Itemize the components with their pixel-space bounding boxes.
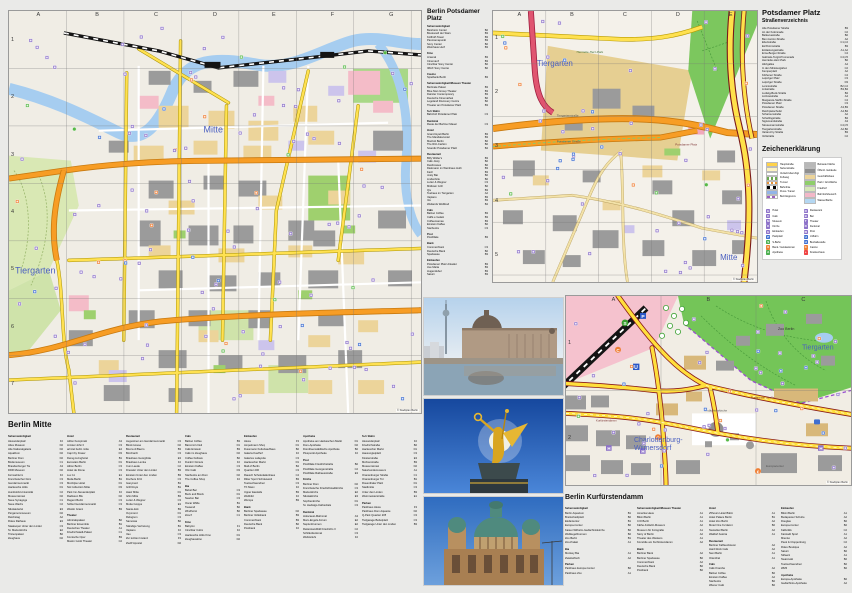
zoo-label: Zoo Berlin <box>778 327 794 331</box>
svg-text:H: H <box>607 446 610 451</box>
index-entry: OttenthalA1 <box>709 557 775 561</box>
legend-icon: ✉ <box>804 230 808 234</box>
district-label: Mitte <box>720 253 738 262</box>
index-entry: WeinmeisterstraßeE1 <box>362 495 417 499</box>
index-entry: Reste der Berliner MauerC3 <box>427 123 488 127</box>
index-entry: Weilands WellfoodB4 <box>427 203 488 207</box>
legend-title: Zeichenerklärung <box>762 146 848 153</box>
street-label-1: Potsdamer Straße <box>557 140 581 144</box>
index-potsdamer-platz: Berlin Potsdamer Platz SehenswürdigkeitB… <box>427 8 488 277</box>
legend-icon: S <box>766 240 770 244</box>
svg-text:H: H <box>819 446 822 451</box>
index-entry: Westin GrandB3 <box>67 508 122 512</box>
district-label: Mitte <box>204 125 223 135</box>
photo-bode-museum <box>423 297 564 396</box>
bridge <box>424 358 563 364</box>
legend-icon: K <box>766 224 770 228</box>
index-entry: Zwölf ApostelD2 <box>126 542 181 546</box>
index-entry: The Coffee ShopF2 <box>185 478 240 482</box>
legend-icon: D <box>804 224 808 228</box>
index-entry: Parkhaus ZooA1 <box>565 572 631 576</box>
index-title: Berlin Mitte <box>8 420 422 429</box>
station-hackescher-markt <box>320 52 334 58</box>
legend-line-item: Bezirksgrenze <box>766 195 801 200</box>
right-column: Potsdamer Platz Straßenverzeichnis Alte … <box>762 8 848 260</box>
legend-icon-item: +Krankenhaus <box>804 250 839 255</box>
park-label: Tiergarten <box>537 59 573 68</box>
index-entry: Pluspunkt ApothekeF2 <box>303 452 358 456</box>
legend-icon: P <box>766 235 770 239</box>
small-park-label: Henriette-Herz-Park <box>577 50 604 54</box>
index-kurfuerstendamm: Berlin Kurfürstendamm SehenswürdigkeitBe… <box>565 494 852 590</box>
index-entry: SaturnB3 <box>427 273 488 277</box>
street-label-1: Kurfürstendamm <box>596 418 617 422</box>
streets-title: Potsdamer Platz <box>762 8 848 17</box>
legend-icon: E <box>766 230 770 234</box>
index-entry: WeltzeituhrF2 <box>303 536 358 540</box>
park-label: Tiergarten <box>15 265 56 275</box>
legend: HauptstraßeNebenstraßeVerkehrsberuhigtFu… <box>762 157 842 260</box>
index-entry: Spielbank BerlinB3 <box>427 76 488 80</box>
legend-areas: Bebaute FlächeÖffentl. GebäudeGeschäftsh… <box>804 162 839 204</box>
index-entry: ZeughausD2 <box>8 537 63 541</box>
index-entry: WempeB3 <box>244 499 299 503</box>
index-title: Berlin Kurfürstendamm <box>565 494 852 501</box>
index-entry: Theater am Potsdamer PlatzB3 <box>427 104 488 108</box>
svg-text:€: € <box>757 469 760 474</box>
legend-lines: HauptstraßeNebenstraßeVerkehrsberuhigtFu… <box>766 162 801 204</box>
photo-siegessaeule-angel <box>423 398 564 494</box>
index-entry: Scandic Potsdamer PlatzB4 <box>427 147 488 151</box>
streets-subtitle: Straßenverzeichnis <box>762 18 848 24</box>
index-entry: Maxim Gorki TheaterC2 <box>67 540 122 544</box>
place-label: Potsdamer Platz <box>675 143 697 147</box>
legend-icon: C <box>766 214 770 218</box>
street-list: Alte Potsdamer StraßeB3An der KolonnadeC… <box>762 27 848 138</box>
legend-icon: + <box>804 250 808 254</box>
index-entry: PostfilialeB3 <box>427 236 488 240</box>
index-columns: SehenswürdigkeitBerlin AquariumB1Breitsc… <box>565 505 852 590</box>
index-entry: Bahnhof Potsdamer PlatzC3 <box>427 113 488 117</box>
legend-swatch <box>766 195 778 200</box>
legend-icon: H <box>766 209 770 213</box>
index-entry: Weinhaus HuthB3 <box>427 46 488 50</box>
street-entry: VoßstraßeC2 <box>762 135 848 139</box>
index-entry: Komödie am KurfürstendammA2 <box>637 541 703 545</box>
map-potsdamer-canvas: Tiergarten Mitte Henriette-Herz-Park Pot… <box>493 11 757 282</box>
index-entry: Zoo-PalastA1 <box>565 541 631 545</box>
legend-icon: U <box>804 235 808 239</box>
legend-icon: B <box>804 214 808 218</box>
map-credit: © Stadtplan Berlin <box>826 481 849 484</box>
station-friedrichstrasse <box>205 62 221 68</box>
legend-icon: € <box>766 245 770 249</box>
index-entry: Wiener CaféB2 <box>709 584 775 588</box>
legend-icon: R <box>804 209 808 213</box>
index-entry: Postfiliale RathausstraßeE3 <box>303 472 358 476</box>
map-kurfuerstendamm: P S U H H H C C € Zoo Berlin Tiergarten … <box>565 295 852 486</box>
index-mitte: Berlin Mitte SehenswürdigkeitAlexanderpl… <box>8 420 422 583</box>
center-label: Europacenter <box>766 464 784 468</box>
index-entry: ZeughauskinoD2 <box>185 538 240 542</box>
index-entry: ZwiebelfischA2 <box>565 557 631 561</box>
legend-icon: A <box>766 250 770 254</box>
street-label-2: Budapester Straße <box>751 395 775 399</box>
map-potsdamer-platz: Tiergarten Mitte Henriette-Herz-Park Pot… <box>492 10 758 283</box>
index-list: SehenswürdigkeitBeisheim CenterB2Bouleva… <box>427 25 488 277</box>
legend-icon: H <box>804 240 808 244</box>
legend-icons: HHotelRRestaurantCCaféBBarMMuseumTTheate… <box>766 208 838 255</box>
index-entry: IMAX Sony CenterB2 <box>427 67 488 71</box>
legend-area-item: Wasserfläche <box>804 198 839 204</box>
index-entry: SparkasseB3 <box>427 253 488 257</box>
street-label-2: Tiergartenstraße <box>557 114 579 118</box>
index-entry: PostbankB2 <box>637 569 703 573</box>
index-entry: Gedächtnis-ApothekeA2 <box>781 582 847 586</box>
map-kudamm-canvas: P S U H H H C C € Zoo Berlin Tiergarten … <box>566 296 851 485</box>
map-mitte-canvas: Mitte Tiergarten <box>9 11 421 413</box>
index-title: Berlin Potsdamer Platz <box>427 8 488 22</box>
svg-text:U: U <box>634 365 638 371</box>
district-label-1: Charlottenburg- <box>634 437 683 444</box>
map-credit: © Stadtplan Berlin <box>396 409 419 412</box>
legend-icon-item: AApotheke <box>766 250 801 255</box>
park-label: Tiergarten <box>802 345 834 352</box>
index-entry: PostbankF2 <box>244 527 299 531</box>
index-entry: St. Hedwigs-KathedraleC3 <box>303 504 358 508</box>
index-entry: Waldorf AstoriaA1 <box>709 533 775 537</box>
legend-icon: T <box>804 219 808 223</box>
legend-icon: C <box>804 245 808 249</box>
church-label: Gedächtniskirche <box>704 408 727 412</box>
index-entry: StarbucksC3 <box>427 227 488 231</box>
legend-swatch <box>804 198 816 204</box>
index-entry: ZoschC1 <box>185 514 240 518</box>
index-entry: WMFB2 <box>781 567 847 571</box>
index-entry: Tiefgarage Unter den LindenB3 <box>362 523 417 527</box>
index-columns: SehenswürdigkeitAlexanderplatzF2Altes Mu… <box>8 433 422 583</box>
map-credit: © Stadtplan Berlin <box>732 278 755 281</box>
map-mitte: Mitte Tiergarten ABCDEFG 1234567 © Stadt… <box>8 10 422 414</box>
photo-berliner-dom <box>423 496 564 586</box>
legend-icon: M <box>766 219 770 223</box>
